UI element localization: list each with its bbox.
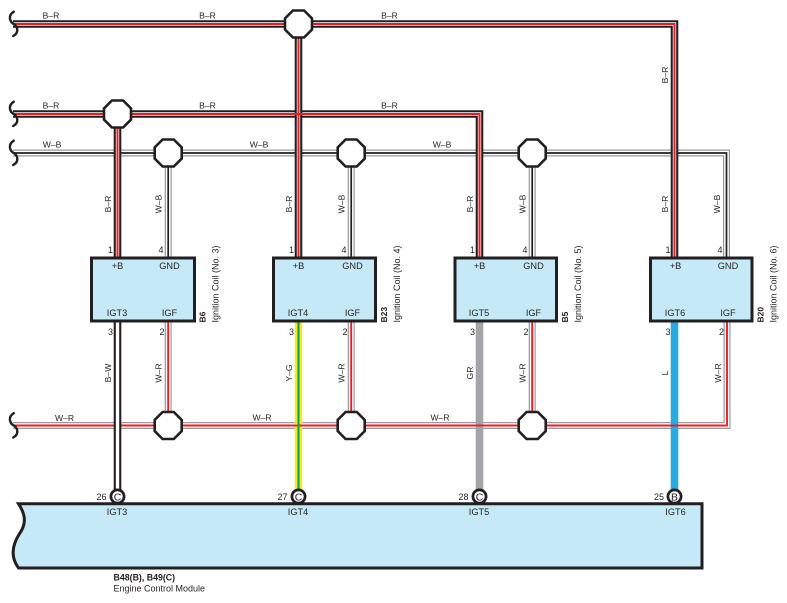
svg-text:B–R: B–R	[465, 196, 475, 213]
svg-text:B–R: B–R	[199, 11, 216, 21]
svg-text:C: C	[476, 492, 484, 504]
svg-text:B–R: B–R	[660, 196, 670, 213]
svg-text:IGT4: IGT4	[288, 507, 308, 517]
svg-text:2: 2	[719, 327, 724, 337]
svg-text:25: 25	[654, 492, 664, 502]
svg-text:IGT5: IGT5	[469, 308, 489, 318]
svg-text:IGT3: IGT3	[107, 308, 127, 318]
svg-text:Engine Control Module: Engine Control Module	[114, 584, 206, 594]
svg-text:4: 4	[341, 245, 346, 255]
svg-text:C: C	[295, 492, 303, 504]
svg-text:W–B: W–B	[712, 194, 722, 213]
svg-text:W–R: W–R	[337, 363, 347, 382]
svg-text:W–B: W–B	[250, 140, 269, 150]
svg-text:+B: +B	[293, 261, 305, 271]
svg-text:1: 1	[289, 245, 294, 255]
svg-text:W–B: W–B	[43, 140, 62, 150]
svg-text:4: 4	[717, 245, 722, 255]
svg-text:B48(B), B49(C): B48(B), B49(C)	[114, 573, 176, 583]
svg-text:B–R: B–R	[103, 196, 113, 213]
svg-text:B–R: B–R	[660, 67, 670, 84]
svg-text:28: 28	[458, 492, 468, 502]
svg-text:L: L	[660, 370, 670, 375]
svg-text:C: C	[114, 492, 122, 504]
svg-text:W–R: W–R	[518, 363, 528, 382]
svg-text:B–R: B–R	[381, 11, 398, 21]
svg-text:+B: +B	[474, 261, 486, 271]
svg-text:W–R: W–R	[55, 413, 74, 423]
svg-text:IGT3: IGT3	[107, 507, 127, 517]
svg-text:GND: GND	[523, 261, 544, 271]
svg-text:B–R: B–R	[381, 101, 398, 111]
svg-text:1: 1	[470, 245, 475, 255]
svg-text:IGT6: IGT6	[665, 308, 685, 318]
svg-text:4: 4	[522, 245, 527, 255]
svg-text:IGT6: IGT6	[665, 507, 685, 517]
svg-text:27: 27	[277, 492, 287, 502]
svg-text:IGF: IGF	[720, 308, 736, 318]
svg-text:B–R: B–R	[43, 11, 60, 21]
svg-text:B–R: B–R	[199, 101, 216, 111]
svg-text:26: 26	[96, 492, 106, 502]
svg-text:GND: GND	[718, 261, 739, 271]
svg-text:B20: B20	[756, 307, 766, 323]
svg-text:B: B	[671, 492, 678, 504]
svg-text:2: 2	[342, 327, 347, 337]
svg-text:W–R: W–R	[154, 363, 164, 382]
svg-text:4: 4	[158, 245, 163, 255]
svg-text:W–B: W–B	[154, 194, 164, 213]
svg-text:3: 3	[108, 327, 113, 337]
svg-text:1: 1	[108, 245, 113, 255]
svg-text:W–B: W–B	[337, 194, 347, 213]
svg-text:B–W: B–W	[103, 363, 113, 383]
svg-text:IGT5: IGT5	[469, 507, 489, 517]
svg-text:W–R: W–R	[252, 413, 271, 423]
svg-text:1: 1	[665, 245, 670, 255]
svg-text:B–R: B–R	[43, 101, 60, 111]
svg-text:B5: B5	[560, 311, 570, 322]
svg-text:GND: GND	[342, 261, 363, 271]
svg-text:Ignition Coil (No. 3): Ignition Coil (No. 3)	[211, 245, 221, 322]
svg-text:W–B: W–B	[518, 194, 528, 213]
svg-text:3: 3	[289, 327, 294, 337]
svg-text:B23: B23	[379, 307, 389, 323]
svg-text:IGF: IGF	[345, 308, 361, 318]
svg-text:3: 3	[665, 327, 670, 337]
svg-text:B6: B6	[198, 311, 208, 322]
svg-text:Ignition Coil (No. 6): Ignition Coil (No. 6)	[769, 245, 779, 322]
svg-text:W–B: W–B	[433, 140, 452, 150]
svg-text:+B: +B	[670, 261, 682, 271]
svg-text:Y–G: Y–G	[284, 364, 294, 382]
svg-text:W–R: W–R	[430, 413, 449, 423]
svg-text:GR: GR	[465, 367, 475, 380]
svg-text:W–R: W–R	[713, 363, 723, 382]
svg-text:3: 3	[470, 327, 475, 337]
svg-text:Ignition Coil (No. 4): Ignition Coil (No. 4)	[392, 245, 402, 322]
svg-text:IGF: IGF	[162, 308, 178, 318]
svg-text:IGT4: IGT4	[288, 308, 308, 318]
svg-text:IGF: IGF	[526, 308, 542, 318]
svg-text:2: 2	[523, 327, 528, 337]
svg-text:Ignition Coil (No. 5): Ignition Coil (No. 5)	[573, 245, 583, 322]
svg-text:B–R: B–R	[284, 196, 294, 213]
svg-text:GND: GND	[159, 261, 180, 271]
svg-text:2: 2	[159, 327, 164, 337]
svg-text:+B: +B	[112, 261, 124, 271]
